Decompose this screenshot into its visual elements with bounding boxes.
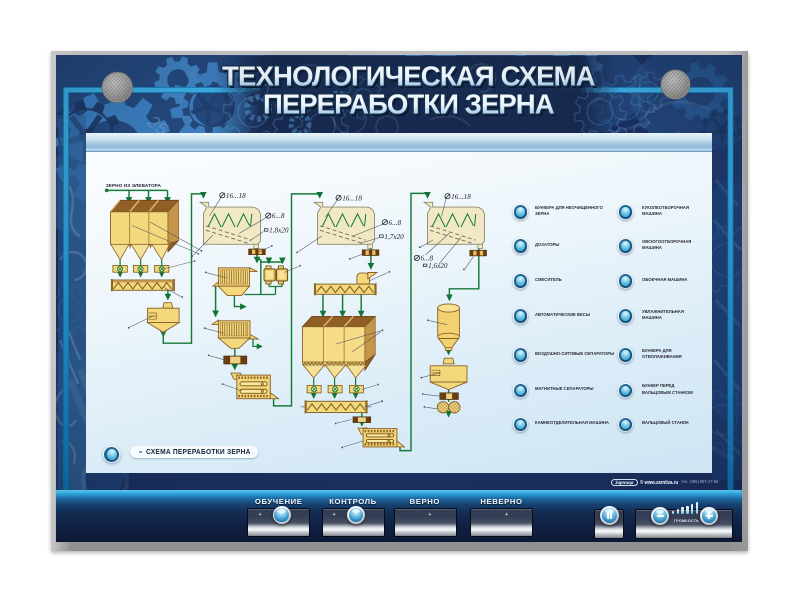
svg-text:ЗЕРНО ИЗ ЭЛЕВАТОРА: ЗЕРНО ИЗ ЭЛЕВАТОРА (106, 183, 162, 188)
svg-text:16...18: 16...18 (342, 194, 362, 202)
svg-text:6...8: 6...8 (389, 219, 402, 227)
svg-text:1,8х20: 1,8х20 (269, 227, 289, 235)
svg-text:1,6х20: 1,6х20 (428, 262, 448, 270)
svg-text:1,7х20: 1,7х20 (384, 233, 404, 241)
svg-text:16...18: 16...18 (226, 192, 246, 200)
svg-text:16...18: 16...18 (451, 193, 471, 201)
svg-text:6...8: 6...8 (272, 212, 285, 220)
